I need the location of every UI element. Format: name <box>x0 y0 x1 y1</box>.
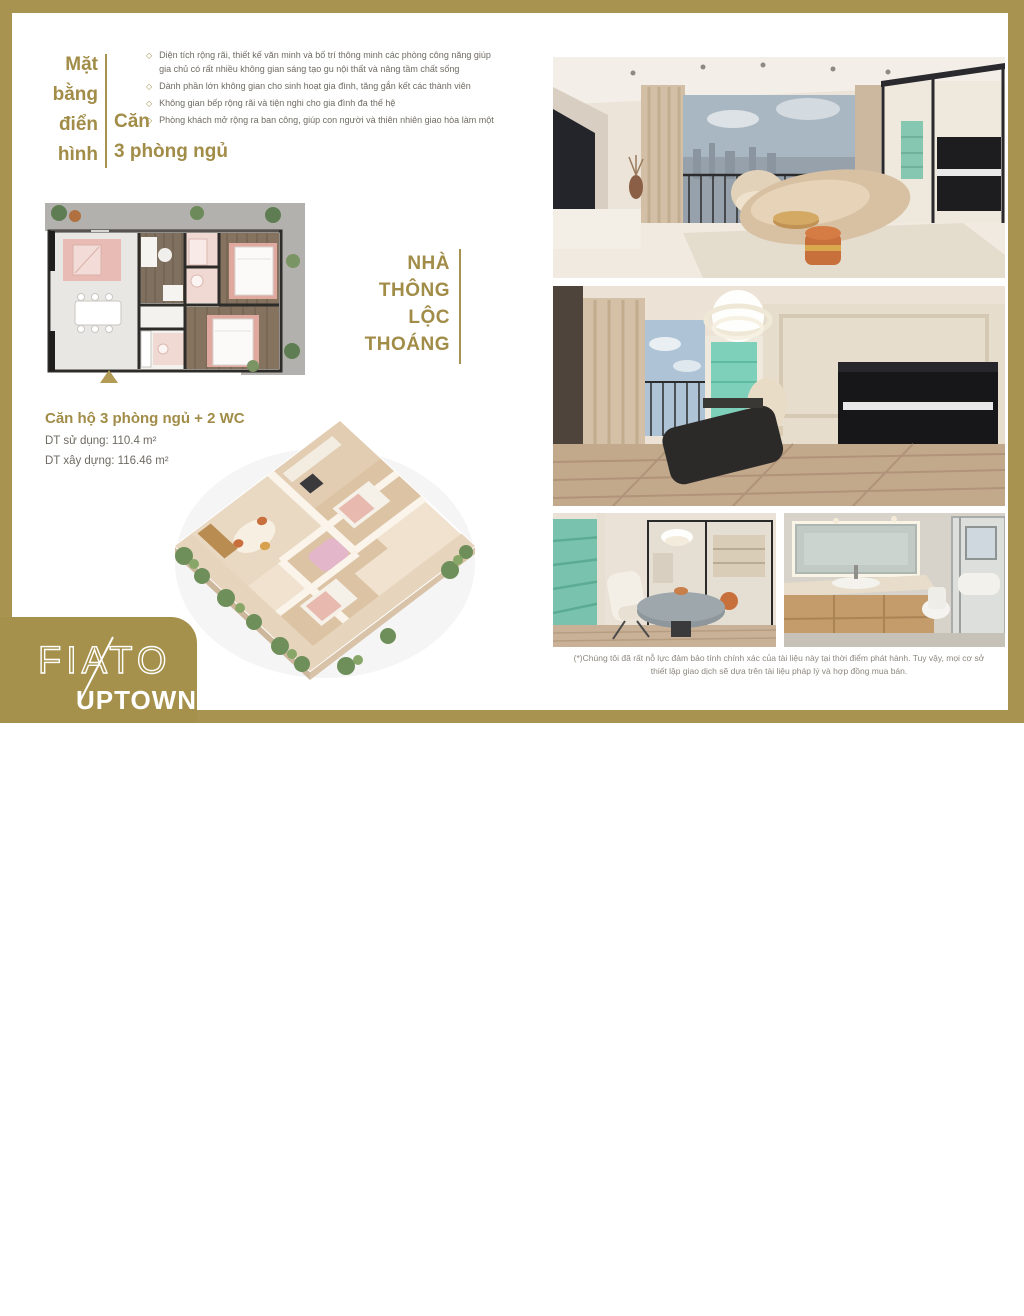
feature-bullet-list: ◇Diện tích rộng rãi, thiết kế văn minh v… <box>146 49 494 131</box>
diamond-bullet-icon: ◇ <box>146 97 152 111</box>
logo-sub-text: UPTOWN <box>76 685 197 715</box>
floor-plan-3d <box>150 398 485 703</box>
site-watermark: Batdongsan <box>12 1302 96 1316</box>
tagline-line: NHÀ <box>358 250 450 277</box>
diamond-bullet-icon: ◇ <box>146 114 152 128</box>
title-line: Mặt <box>20 50 98 80</box>
tagline-line: LỘC <box>358 304 450 331</box>
bullet-item: ◇Diện tích rộng rãi, thiết kế văn minh v… <box>146 49 494 77</box>
bullet-item: ◇Phòng khách mở rộng ra ban công, giúp c… <box>146 114 494 128</box>
chevron-watermark-icon <box>12 1302 28 1316</box>
disclaimer-line: (*)Chúng tôi đã rất nỗ lực đảm bảo tính … <box>553 652 1005 665</box>
photo-piano-room <box>553 286 1005 506</box>
bullet-item: ◇Không gian bếp rộng rãi và tiện nghi ch… <box>146 97 494 111</box>
bullet-text: Dành phần lớn không gian cho sinh hoạt g… <box>159 80 471 94</box>
bullet-text: Không gian bếp rộng rãi và tiện nghi cho… <box>159 97 395 111</box>
unit-area-usable: DT sử dụng: 110.4 m² <box>45 435 156 447</box>
title-line: 3 phòng ngủ <box>114 137 228 167</box>
tagline: NHÀ THÔNG LỘC THOÁNG <box>358 250 450 358</box>
brand-logo: FIATO UPTOWN <box>0 617 197 723</box>
diamond-bullet-icon: ◇ <box>146 49 152 77</box>
tagline-line: THÔNG <box>358 277 450 304</box>
footer-disclaimer: (*)Chúng tôi đã rất nỗ lực đảm bảo tính … <box>553 652 1005 678</box>
title-divider <box>105 54 107 168</box>
brochure-page: { "header": { "left_lines": ["Mặt", "bằn… <box>0 0 1024 723</box>
logo-brand-text: FIATO <box>38 640 171 682</box>
disclaimer-line: thiết lập giao dịch sẽ dựa trên tài liệu… <box>553 665 1005 678</box>
photo-living-room <box>553 57 1005 278</box>
bullet-text: Diện tích rộng rãi, thiết kế văn minh và… <box>159 49 494 77</box>
watermark-label: Batdongsan <box>32 1303 96 1315</box>
title-line: hình <box>20 140 98 170</box>
bullet-item: ◇Dành phần lớn không gian cho sinh hoạt … <box>146 80 494 94</box>
diamond-bullet-icon: ◇ <box>146 80 152 94</box>
tagline-divider <box>459 249 461 364</box>
frame-left-bar <box>0 0 12 723</box>
frame-right-bar <box>1008 0 1024 723</box>
photo-bathroom <box>784 513 1005 647</box>
tagline-line: THOÁNG <box>358 331 450 358</box>
bullet-text: Phòng khách mở rộng ra ban công, giúp co… <box>159 114 494 128</box>
frame-top-bar <box>0 0 1024 13</box>
brand-logo-block: FIATO UPTOWN Batdongsan <box>0 617 197 723</box>
title-line: bằng <box>20 80 98 110</box>
page-title-left: Mặt bằng điển hình <box>20 50 98 170</box>
photo-office <box>553 513 776 647</box>
floor-plan-2d <box>45 203 305 375</box>
entrance-triangle-icon <box>100 370 118 383</box>
title-line: điển <box>20 110 98 140</box>
